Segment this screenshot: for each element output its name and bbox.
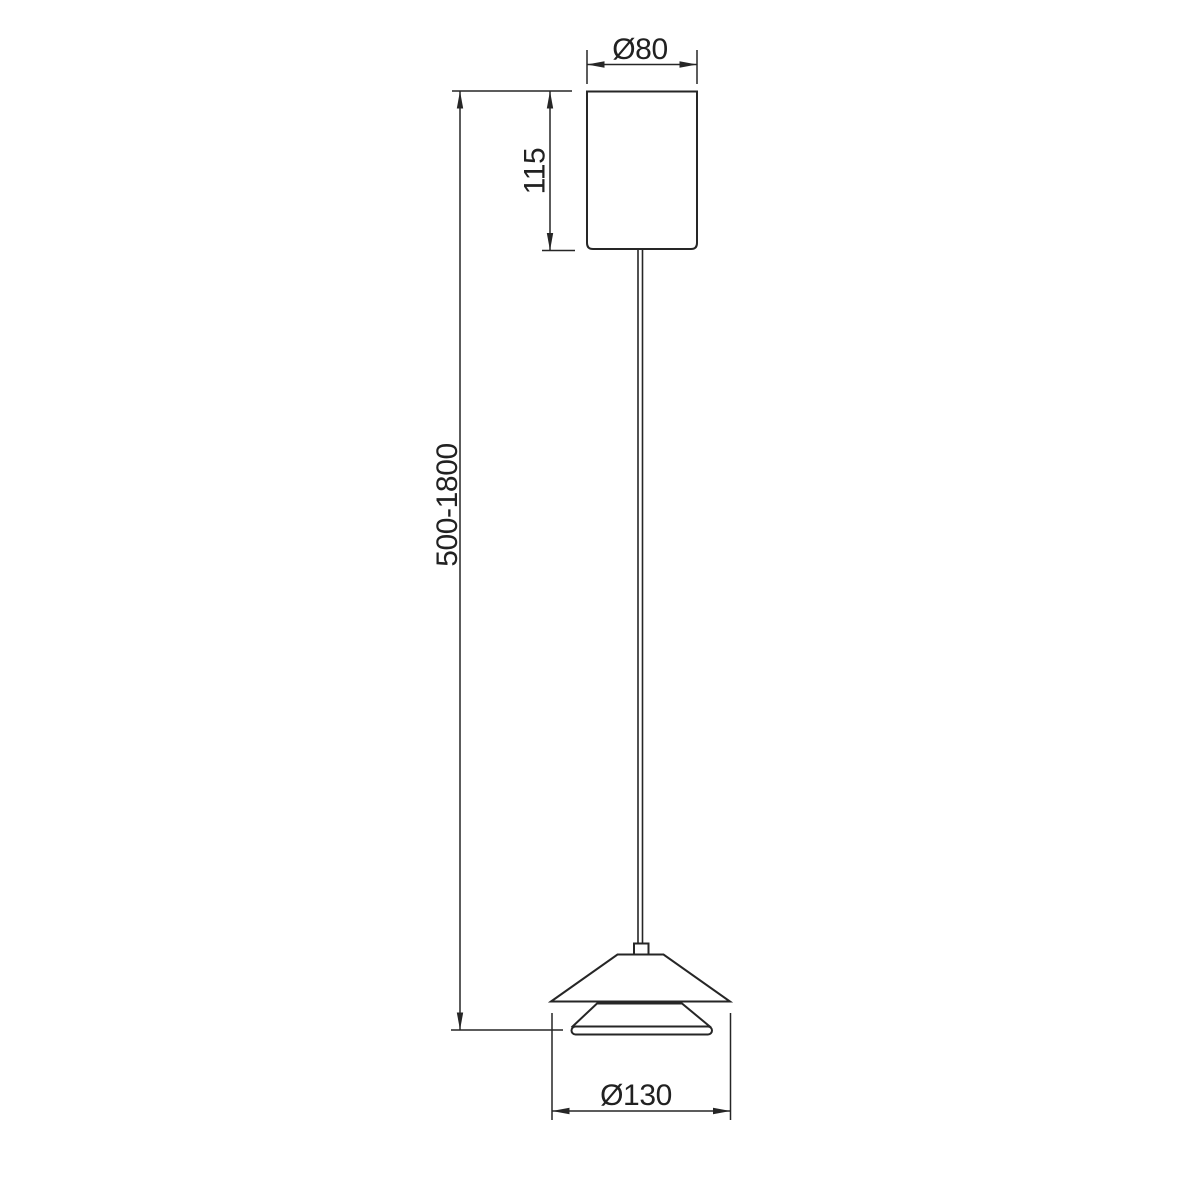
arrow-canopy-height-bottom-icon bbox=[547, 233, 553, 251]
arrow-shade-diameter-right-icon bbox=[713, 1108, 731, 1114]
shade-inner-tier bbox=[572, 1004, 712, 1028]
cable-grip bbox=[634, 944, 649, 955]
label-canopy-height: 115 bbox=[519, 148, 552, 195]
arrow-canopy-diameter-left-icon bbox=[587, 61, 605, 67]
drawing-page: Ø80 115 500-1800 Ø130 bbox=[0, 0, 1200, 1200]
ceiling-canopy bbox=[587, 92, 697, 250]
arrow-suspension-length-top-icon bbox=[457, 91, 463, 109]
lamp-object-group bbox=[551, 92, 730, 1035]
label-suspension-length: 500-1800 bbox=[431, 443, 464, 567]
label-shade-diameter: Ø130 bbox=[600, 1079, 672, 1112]
arrow-canopy-height-top-icon bbox=[547, 91, 553, 109]
shade-top-cone bbox=[551, 955, 730, 1002]
arrow-suspension-length-bottom-icon bbox=[457, 1013, 463, 1031]
dimension-drawing: Ø80 115 500-1800 Ø130 bbox=[0, 0, 1200, 1200]
shade-diffuser bbox=[572, 1027, 713, 1035]
label-canopy-diameter: Ø80 bbox=[612, 33, 668, 66]
arrow-shade-diameter-left-icon bbox=[552, 1108, 570, 1114]
arrow-canopy-diameter-right-icon bbox=[680, 61, 698, 67]
